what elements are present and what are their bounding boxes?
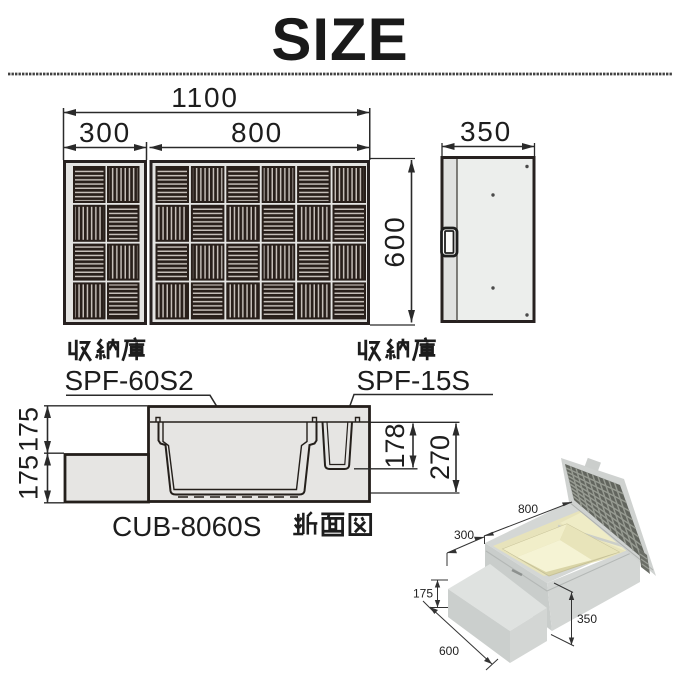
svg-text:175: 175 <box>14 455 44 500</box>
svg-text:350: 350 <box>460 116 512 147</box>
svg-text:SIZE: SIZE <box>271 6 408 73</box>
svg-text:800: 800 <box>231 117 283 148</box>
svg-text:600: 600 <box>439 644 459 658</box>
svg-text:SPF-15S: SPF-15S <box>357 365 471 396</box>
svg-text:SPF-60S2: SPF-60S2 <box>65 365 194 396</box>
svg-text:600: 600 <box>379 215 410 267</box>
svg-text:CUB-8060S: CUB-8060S <box>112 511 261 542</box>
svg-text:300: 300 <box>454 528 474 542</box>
svg-text:270: 270 <box>425 435 455 480</box>
svg-text:300: 300 <box>79 117 131 148</box>
svg-text:175: 175 <box>14 407 44 452</box>
svg-text:175: 175 <box>413 587 433 601</box>
svg-text:1100: 1100 <box>171 82 238 113</box>
svg-text:800: 800 <box>518 502 538 516</box>
svg-text:178: 178 <box>380 423 410 468</box>
svg-text:350: 350 <box>577 612 597 626</box>
